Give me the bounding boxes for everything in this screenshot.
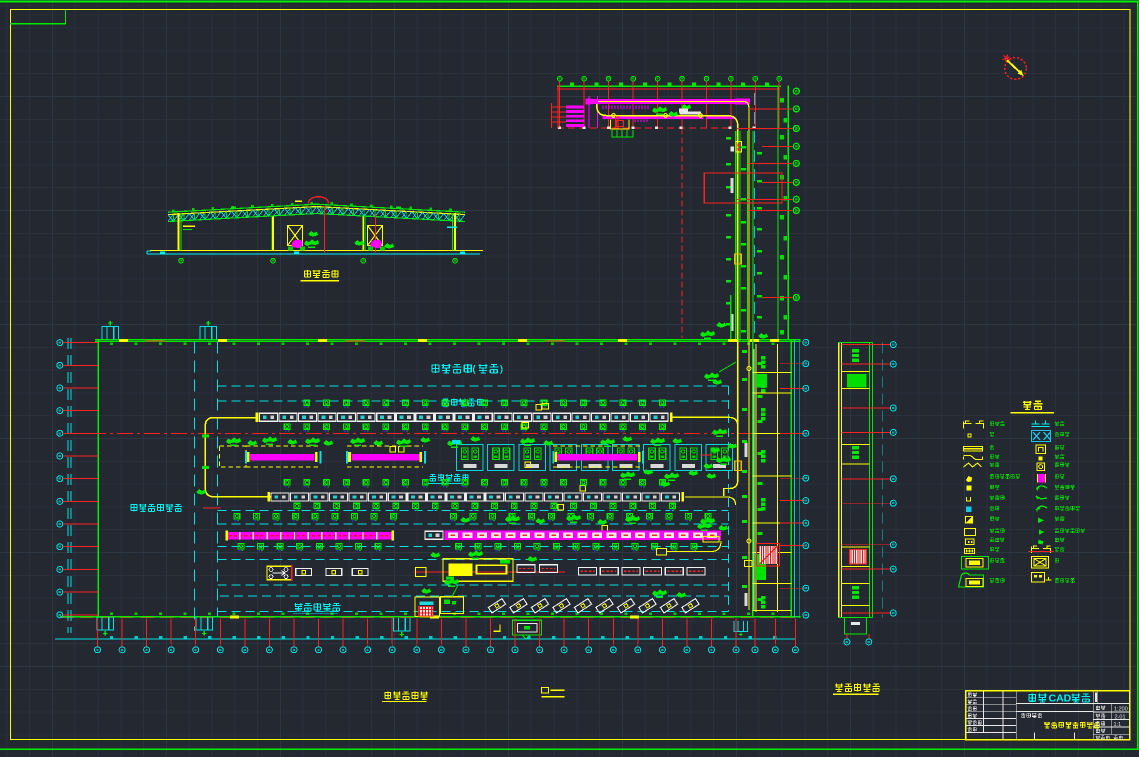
svg-text:1:200: 1:200 bbox=[1114, 706, 1128, 712]
svg-text:CAD: CAD bbox=[1049, 692, 1072, 704]
svg-text:2-01: 2-01 bbox=[1115, 714, 1126, 720]
svg-text:1:1: 1:1 bbox=[1114, 722, 1122, 728]
